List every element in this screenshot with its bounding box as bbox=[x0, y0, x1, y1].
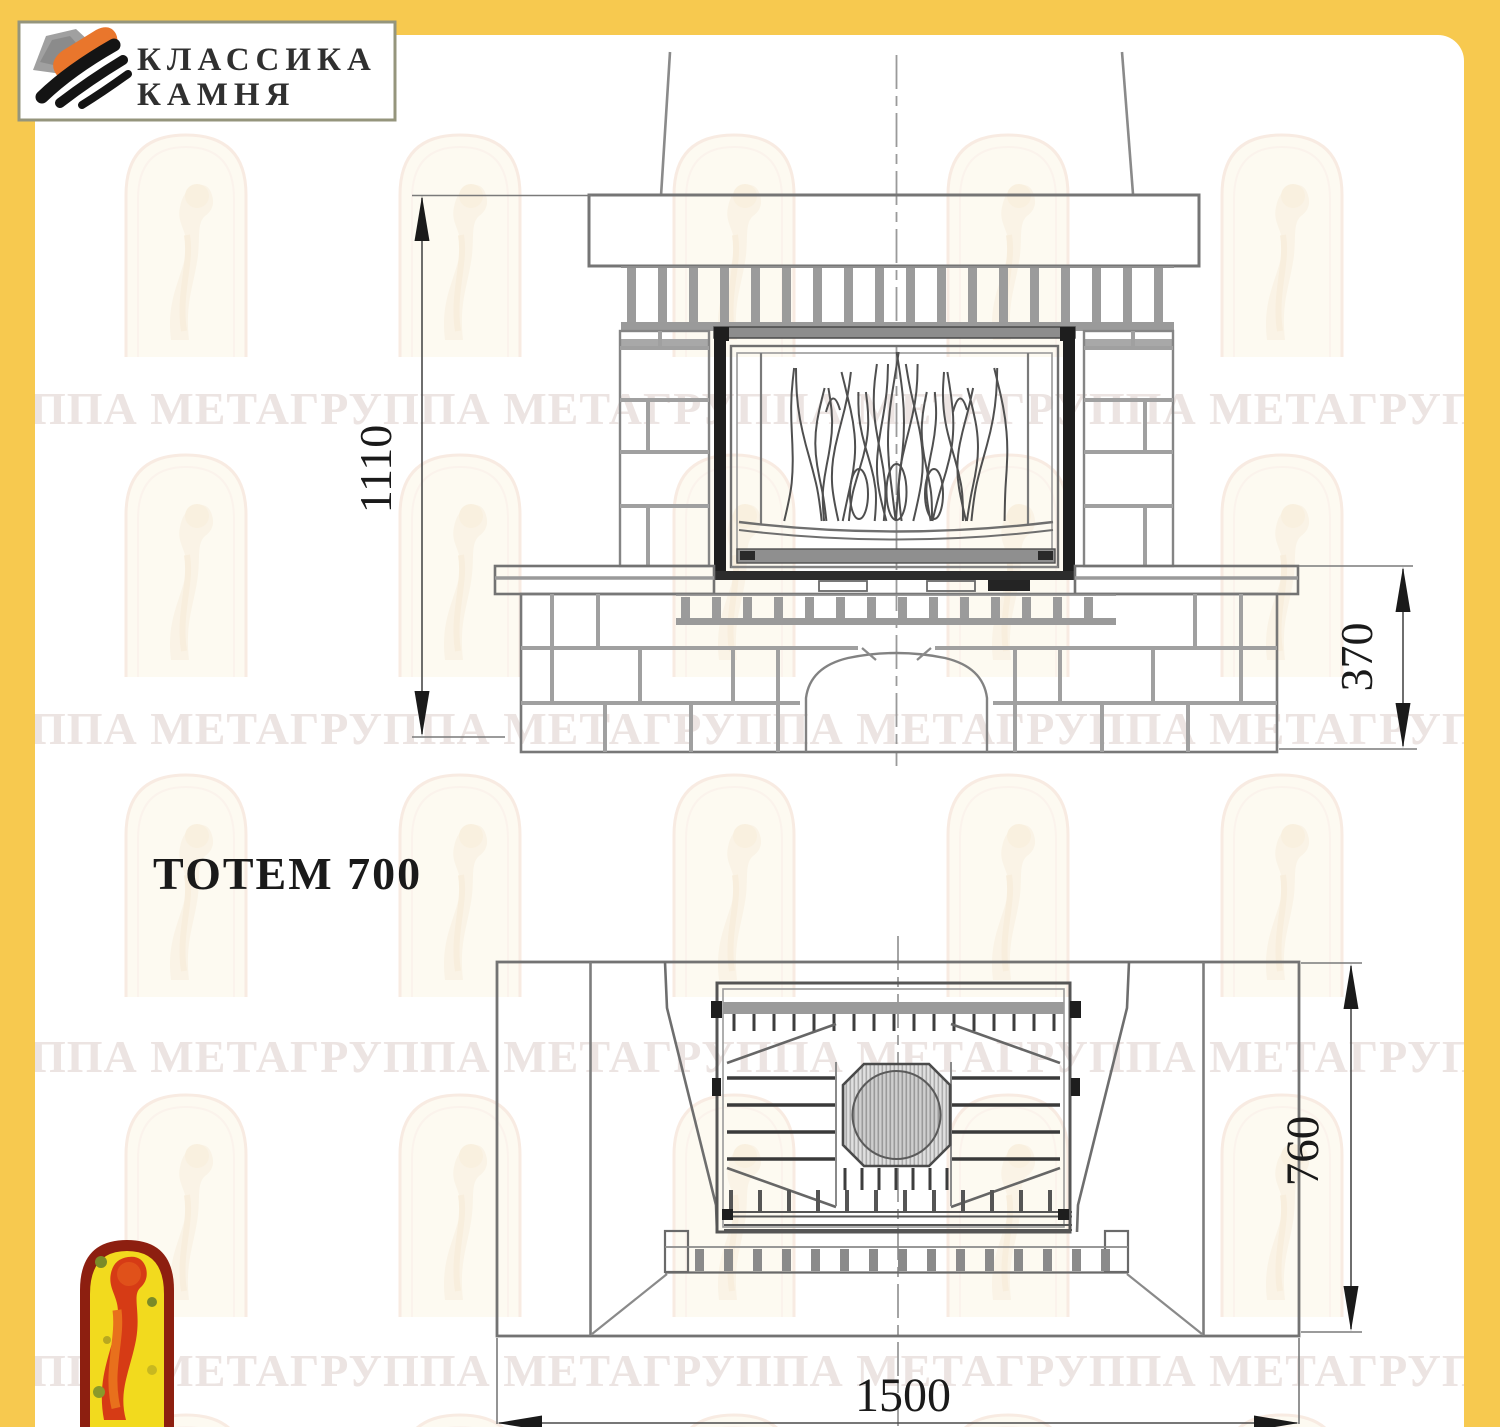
svg-text:1500: 1500 bbox=[855, 1369, 951, 1422]
svg-text:КЛАССИКА: КЛАССИКА bbox=[137, 42, 377, 78]
svg-text:ППА МЕТАГРУППА МЕТАГРУППА МЕТА: ППА МЕТАГРУППА МЕТАГРУППА МЕТАГРУППА МЕТ… bbox=[30, 383, 1500, 434]
svg-text:ППА МЕТАГРУППА МЕТАГРУППА МЕТА: ППА МЕТАГРУППА МЕТАГРУППА МЕТАГРУППА МЕТ… bbox=[30, 1031, 1500, 1082]
svg-text:1110: 1110 bbox=[350, 425, 401, 514]
svg-text:КАМНЯ: КАМНЯ bbox=[137, 77, 295, 113]
svg-text:760: 760 bbox=[1277, 1116, 1329, 1187]
svg-text:370: 370 bbox=[1331, 623, 1382, 692]
svg-text:ППА МЕТАГРУППА МЕТАГРУППА МЕТА: ППА МЕТАГРУППА МЕТАГРУППА МЕТАГРУППА МЕТ… bbox=[30, 1345, 1500, 1396]
svg-text:ППА МЕТАГРУППА МЕТАГРУППА МЕТА: ППА МЕТАГРУППА МЕТАГРУППА МЕТАГРУППА МЕТ… bbox=[30, 703, 1500, 754]
svg-text:ТОТЕМ 700: ТОТЕМ 700 bbox=[153, 848, 422, 899]
